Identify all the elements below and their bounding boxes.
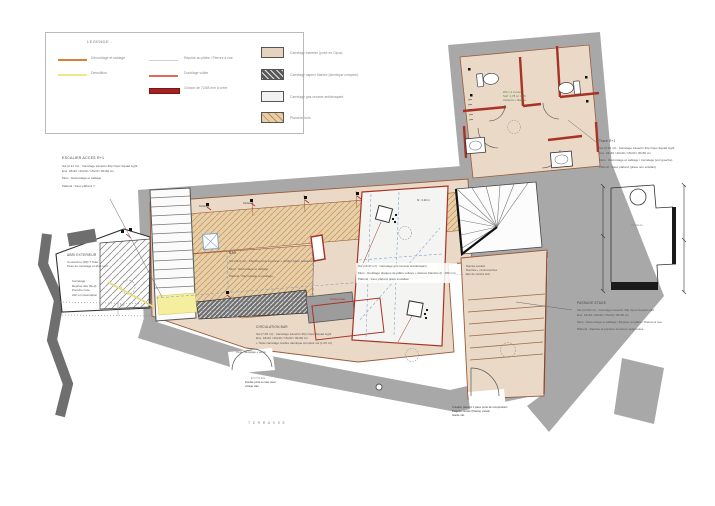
washbasin [465,137,485,154]
shower-drain-square [203,233,219,249]
legend-line-doublage [149,75,178,77]
abri-exterieur-room [56,228,150,312]
legend-line-decroutage [58,59,87,61]
legend-line-demolition [58,74,87,76]
annotation-passage: PASSAGE ETAGE Sol (13.90 m²) : Carrelage… [577,301,662,331]
spiral-staircase [456,182,542,254]
annotation-entree-lines: Double porte à créer avec vitrage clair [245,381,276,388]
legend-swatch-travertin [261,47,284,58]
legend-label: Cloison de 72/48 mm à créer [184,86,228,90]
radiator-label: Radiateur [199,205,209,209]
legend-label: Démolition [91,71,107,75]
annotation-height-note: ht : 2.20 m [417,199,430,203]
legend-label: Décroûtage et sablage [91,56,125,60]
annotation-circulation: CIRCULATION BAR Sol (7.05 m²) : Carrelag… [256,325,332,345]
radiator-label: Radiateur [243,202,253,206]
annotation-abri-2: Carrelage : Reprise dès (R+2) Prendre Co… [72,279,97,297]
legend-label: Plancher bois [290,116,311,120]
legend-label: Carrelage aspect Marbre (identique compt… [290,73,358,77]
legend-swatch-bois [261,112,284,123]
legend-box: LEGENDE : Décroûtage et sablage Démoliti… [45,32,304,134]
floor-drain [376,384,382,390]
annotation-abri: ABRI EXTERIEUR Couverture (R0) ? Toile P… [67,253,108,269]
annotation-placard: Création placard 1 place porte de récupé… [452,406,507,417]
annotation-palier: Reprise escalier Marches + contremarches… [466,265,497,276]
legend-swatch-marbre [261,69,284,80]
legend-line-reprise [149,60,178,61]
legend-title: LEGENDE : [87,39,112,44]
annotation-bar: BAR Sol (31.6 m²) : Plancher bois à ponc… [229,251,315,279]
terrasse-label: TERRASSE [248,421,287,426]
floor-plan-sheet: LEGENDE : Décroûtage et sablage Démoliti… [0,0,715,506]
legend-label: Carrelage travertin (pose en Opus) [290,51,342,55]
dimension-label: 150 [120,304,124,308]
annotation-cuisine: Sol (16.47 m²) : Carrelage gris cérame a… [356,263,457,283]
legend-label: Doublage voilée [184,71,208,75]
annotation-wc: WC x 2 à créer Surf. 1.78 m² / WC Cloiso… [503,91,526,103]
washbasin [550,151,572,168]
legend-line-cloison [149,88,180,94]
legend-swatch-gris [261,91,284,102]
annotation-cuisine-red-note: À faire poser [330,298,345,302]
legend-label: Carrelage gris cérame antidérapant [290,95,343,99]
legend-label: Reprise au plâtre / Pierres à vue [184,56,233,60]
wc-block [460,45,600,178]
section-label-credence: Crédence [631,224,643,228]
annotation-entree-note: Porte : décapage + vernis [236,351,266,355]
annotation-escalier: ESCALIER ACCES R+1 Sol (2.31 m²) : Carre… [62,156,137,188]
annotation-trace: Tracé R+1 Sol (8.35 m²) : Carrelage trav… [599,139,674,169]
annotation-entree-label: ENTREE [251,376,266,380]
